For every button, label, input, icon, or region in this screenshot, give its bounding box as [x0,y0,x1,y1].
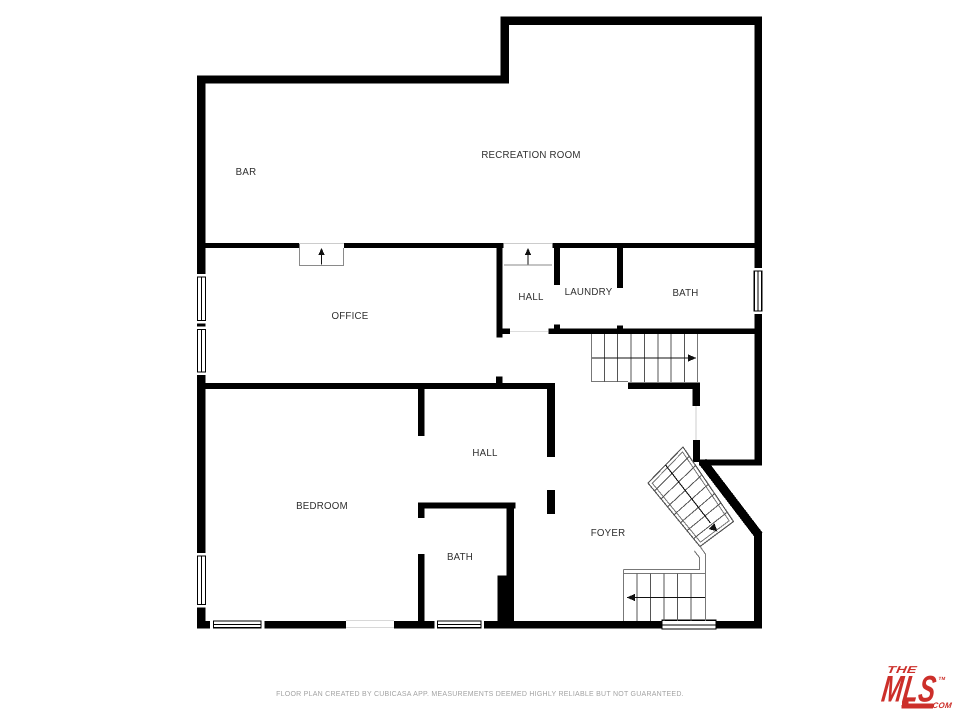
svg-text:BATH: BATH [672,288,698,299]
svg-text:FOYER: FOYER [591,528,626,539]
svg-text:BAR: BAR [236,167,257,178]
svg-text:RECREATION ROOM: RECREATION ROOM [481,150,580,161]
svg-text:HALL: HALL [472,448,498,459]
svg-text:OFFICE: OFFICE [331,311,368,322]
svg-text:TM: TM [938,676,946,681]
svg-text:LAUNDRY: LAUNDRY [565,287,613,298]
svg-text:HALL: HALL [518,292,544,303]
svg-text:FLOOR PLAN CREATED BY CUBICASA: FLOOR PLAN CREATED BY CUBICASA APP. MEAS… [276,691,684,698]
svg-text:BATH: BATH [447,552,473,563]
svg-text:BEDROOM: BEDROOM [296,501,348,512]
